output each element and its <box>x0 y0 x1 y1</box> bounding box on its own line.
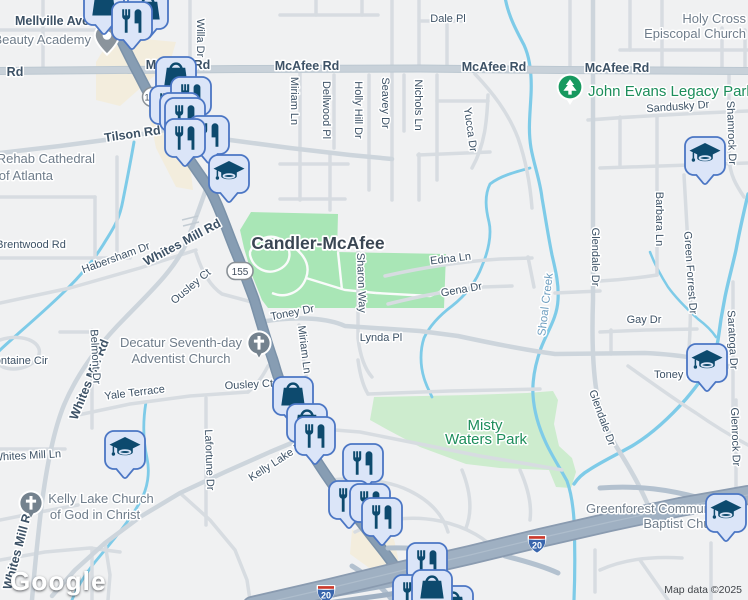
svg-text:McAfee Rd: McAfee Rd <box>275 59 340 73</box>
svg-text:Glendale Dr: Glendale Dr <box>589 228 601 287</box>
svg-text:of God in Christ: of God in Christ <box>50 507 141 522</box>
svg-text:Waters Park: Waters Park <box>445 431 527 448</box>
svg-text:Miriam Ln: Miriam Ln <box>288 77 300 125</box>
svg-text:Dale Pl: Dale Pl <box>430 13 465 25</box>
svg-text:Rd: Rd <box>7 65 24 79</box>
svg-text:Barbara Ln: Barbara Ln <box>653 192 665 246</box>
svg-text:Rehab Cathedral: Rehab Cathedral <box>0 151 95 166</box>
svg-text:Google: Google <box>10 566 107 596</box>
svg-text:McAfee Rd: McAfee Rd <box>585 61 650 75</box>
svg-text:Glenrock Dr: Glenrock Dr <box>728 407 742 466</box>
svg-text:of Atlanta: of Atlanta <box>0 168 54 183</box>
svg-text:Fontaine Cir: Fontaine Cir <box>0 355 48 367</box>
svg-text:Seavey Dr: Seavey Dr <box>379 77 391 129</box>
svg-text:Holly Hill Dr: Holly Hill Dr <box>352 81 364 139</box>
svg-text:Candler-McAfee: Candler-McAfee <box>251 233 384 253</box>
svg-text:Ousley Ct: Ousley Ct <box>224 378 273 393</box>
svg-text:Holy Cross: Holy Cross <box>682 11 746 26</box>
svg-text:Gay Dr: Gay Dr <box>627 314 662 326</box>
svg-text:Greenforest Community: Greenforest Community <box>586 501 724 516</box>
svg-text:Brentwood Rd: Brentwood Rd <box>0 239 66 251</box>
svg-text:Adventist Church: Adventist Church <box>132 351 231 366</box>
svg-text:Lynda Pl: Lynda Pl <box>360 332 402 344</box>
svg-text:Shamrock Dr: Shamrock Dr <box>724 101 738 166</box>
svg-text:McAfee Rd: McAfee Rd <box>462 60 527 74</box>
svg-text:Lafortune Dr: Lafortune Dr <box>202 429 216 491</box>
svg-text:155: 155 <box>232 267 249 278</box>
svg-text:Beauty Academy: Beauty Academy <box>0 32 91 47</box>
svg-text:Dellwood Pl: Dellwood Pl <box>320 81 332 139</box>
svg-text:Episcopal Church: Episcopal Church <box>644 26 746 41</box>
svg-text:Map data ©2025: Map data ©2025 <box>664 584 742 596</box>
svg-text:Willa Dr: Willa Dr <box>194 19 206 58</box>
svg-text:Decatur Seventh-day: Decatur Seventh-day <box>120 335 243 350</box>
svg-text:Nichols Ln: Nichols Ln <box>412 79 424 130</box>
svg-text:John Evans Legacy Park: John Evans Legacy Park <box>588 83 748 100</box>
svg-text:Kelly Lake Church: Kelly Lake Church <box>48 491 154 506</box>
svg-text:Sharon Way: Sharon Way <box>354 253 368 314</box>
svg-text:Mellville Ave: Mellville Ave <box>15 14 89 28</box>
